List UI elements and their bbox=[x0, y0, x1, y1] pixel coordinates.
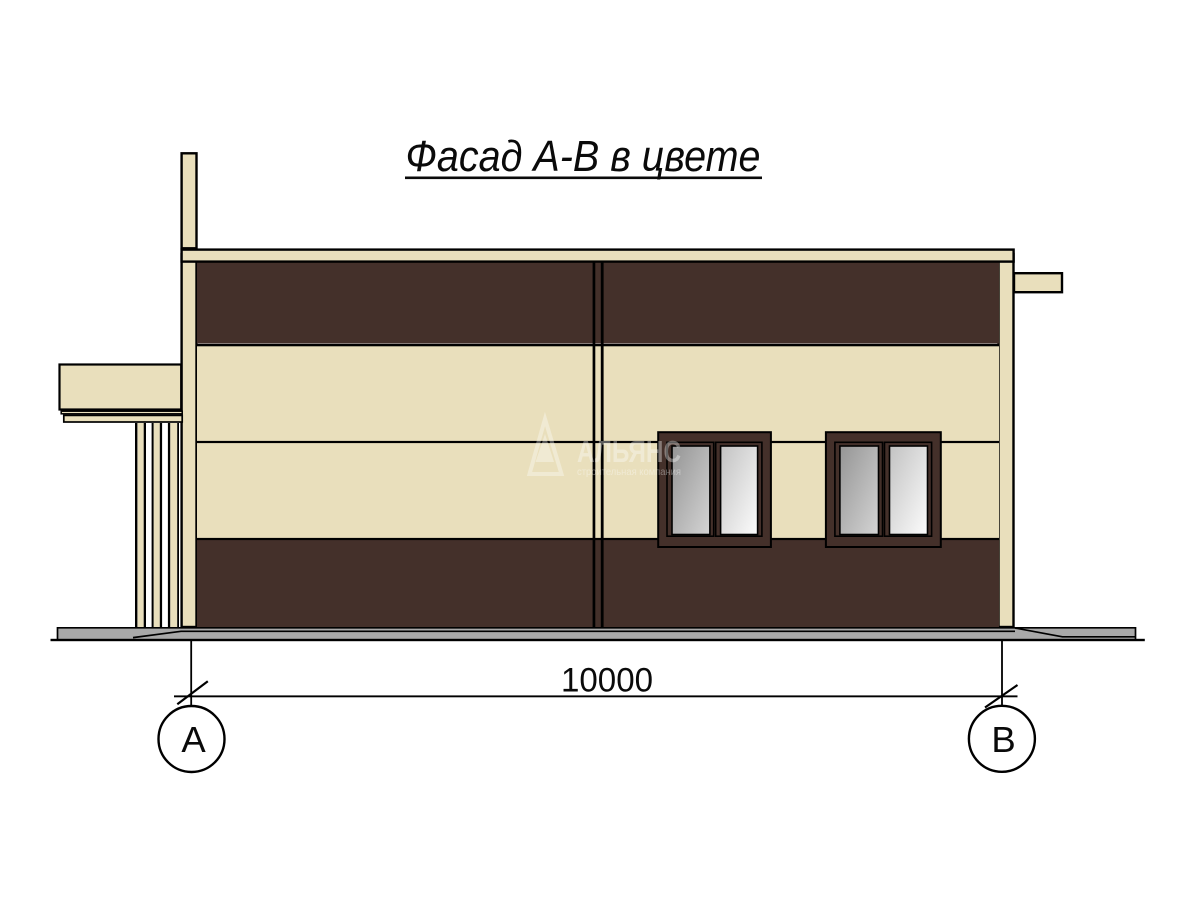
svg-text:строительная компания: строительная компания bbox=[577, 467, 681, 478]
svg-text:В: В bbox=[991, 719, 1015, 760]
svg-text:10000: 10000 bbox=[561, 662, 653, 700]
svg-text:АЛЬЯНС: АЛЬЯНС bbox=[577, 434, 681, 469]
svg-text:А: А bbox=[181, 719, 206, 760]
svg-text:Фасад А-В в цвете: Фасад А-В в цвете bbox=[406, 132, 761, 181]
